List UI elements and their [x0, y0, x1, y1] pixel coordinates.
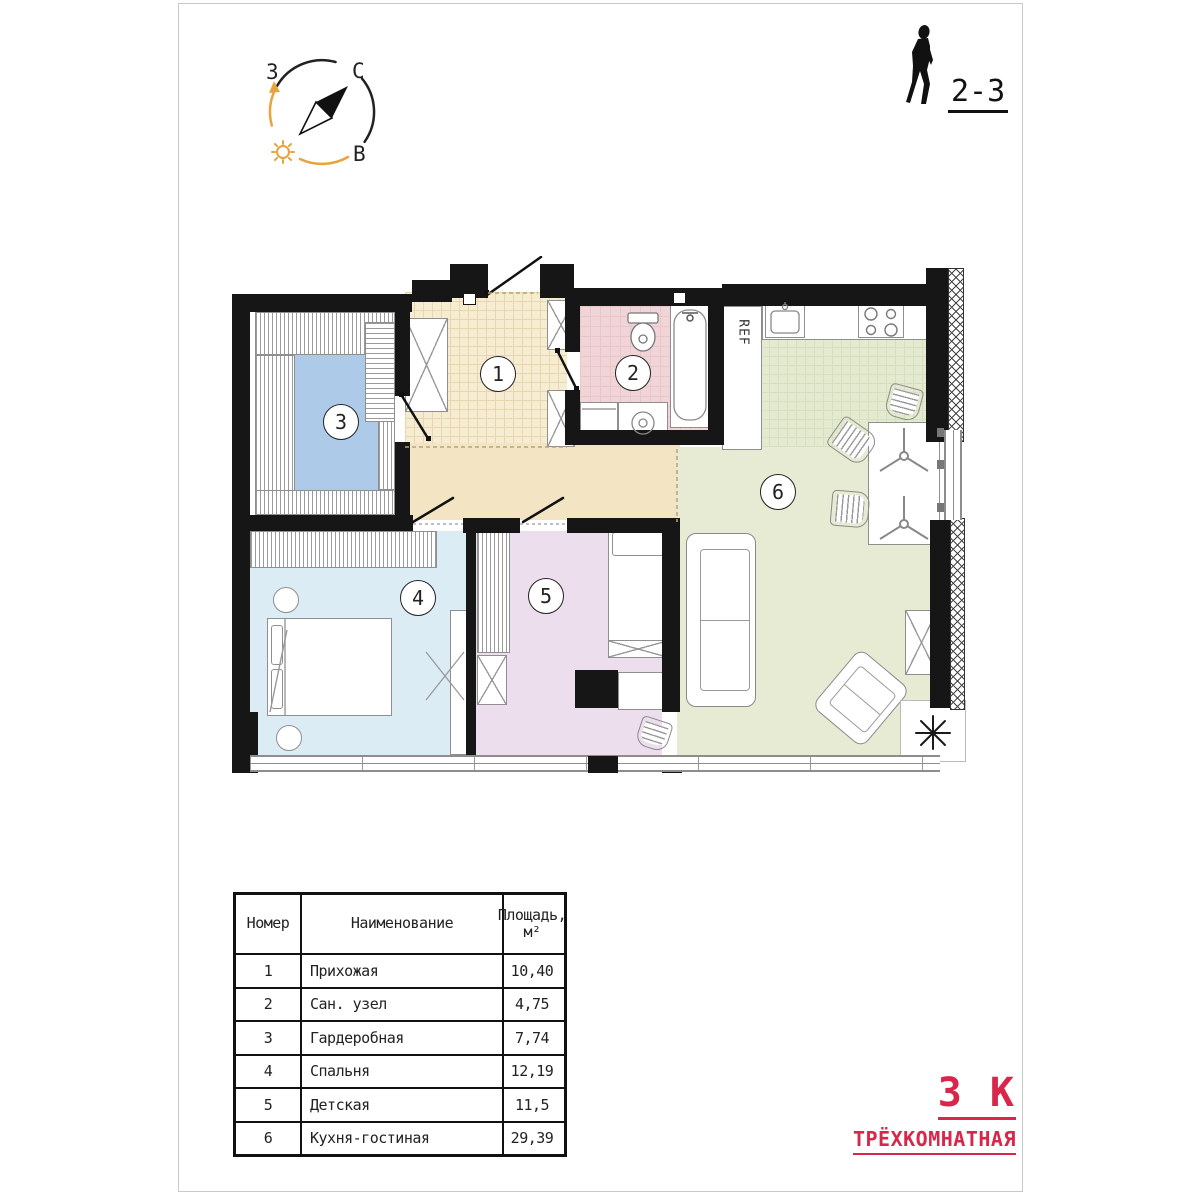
- room-number: 2: [627, 361, 639, 385]
- wall: [232, 295, 250, 773]
- insulation-strip: [950, 518, 965, 710]
- kids-cabinet: [477, 655, 507, 705]
- table-row: 6 Кухня-гостиная 29,39: [236, 1121, 564, 1155]
- corridor-area: [405, 443, 680, 520]
- sun-icon: [272, 141, 294, 163]
- wall: [232, 515, 413, 531]
- pillow-icon: [612, 532, 664, 556]
- room-circle-2: 2: [615, 355, 651, 391]
- cell-number: 5: [236, 1089, 300, 1121]
- table-row: 4 Спальня 12,19: [236, 1054, 564, 1088]
- cell-area: 10,40: [502, 955, 560, 987]
- nightstand-icon: [276, 725, 302, 751]
- bedroom-closet: [250, 531, 437, 568]
- table-row: 1 Прихожая 10,40: [236, 953, 564, 987]
- room-number: 3: [335, 410, 347, 434]
- area-header-line2: м²: [523, 924, 540, 941]
- floor-plan: REF: [230, 256, 970, 778]
- col-header-number: Номер: [236, 895, 300, 953]
- wall: [662, 527, 680, 712]
- table-row: 3 Гардеробная 7,74: [236, 1020, 564, 1054]
- kids-shelf: [477, 531, 510, 653]
- stove-icon: [858, 303, 904, 338]
- sofa-icon: [686, 533, 756, 707]
- compass-needle-icon: [300, 86, 348, 134]
- cell-area: 29,39: [502, 1123, 560, 1155]
- apartment-type-block: 3 К ТРЁХКОМНАТНАЯ: [853, 1070, 1016, 1155]
- room-spec-table: Номер Наименование Площадь, м² 1 Прихожа…: [233, 892, 567, 1157]
- wall: [722, 284, 932, 306]
- room-number: 5: [540, 584, 552, 608]
- window-hardware: [937, 460, 944, 469]
- compass-north-label: С: [352, 59, 365, 83]
- person-icon: [900, 24, 944, 116]
- window-right: [944, 430, 962, 520]
- window-hardware: [937, 503, 944, 512]
- wall: [708, 288, 724, 445]
- chair-icon: [830, 489, 871, 528]
- wall: [395, 312, 410, 396]
- col-header-area: Площадь, м²: [502, 895, 560, 953]
- nightstand-icon: [273, 587, 299, 613]
- shaft-block: [575, 670, 618, 708]
- hall-closet: [405, 318, 448, 412]
- room-number: 1: [492, 362, 504, 386]
- col-header-name: Наименование: [300, 895, 502, 953]
- window-hardware: [937, 428, 944, 437]
- cell-name: Детская: [300, 1089, 502, 1121]
- cell-area: 11,5: [502, 1089, 560, 1121]
- wall: [930, 520, 950, 708]
- desk-icon: [618, 672, 668, 710]
- wall: [232, 294, 412, 312]
- wall: [565, 300, 580, 352]
- pillow-icon: [271, 669, 283, 709]
- fridge-label: REF: [736, 306, 751, 360]
- wall-niche: [673, 292, 686, 304]
- table-row: 2 Сан. узел 4,75: [236, 987, 564, 1021]
- cell-number: 2: [236, 989, 300, 1021]
- window-pier: [588, 756, 618, 773]
- apartment-type-short: 3 К: [938, 1070, 1016, 1120]
- cell-number: 6: [236, 1123, 300, 1155]
- cell-name: Гардеробная: [300, 1022, 502, 1054]
- bathtub-icon: [670, 305, 710, 428]
- room-number: 6: [772, 480, 784, 504]
- room-number: 4: [412, 586, 424, 610]
- area-header-line1: Площадь,: [498, 907, 566, 924]
- cell-name: Прихожая: [300, 955, 502, 987]
- cell-number: 3: [236, 1022, 300, 1054]
- double-bed-icon: [267, 618, 392, 716]
- room-circle-4: 4: [400, 580, 436, 616]
- cell-name: Спальня: [300, 1056, 502, 1088]
- wall: [926, 268, 950, 442]
- room-circle-3: 3: [323, 404, 359, 440]
- wall: [412, 280, 452, 302]
- room-circle-1: 1: [480, 356, 516, 392]
- cell-area: 4,75: [502, 989, 560, 1021]
- pillow-icon: [271, 625, 283, 665]
- cell-number: 1: [236, 955, 300, 987]
- floors-label: 2-3: [948, 74, 1008, 113]
- cell-name: Сан. узел: [300, 989, 502, 1021]
- compass-west-label: З: [266, 60, 279, 84]
- fridge-cabinet: REF: [722, 306, 762, 450]
- table-row: 5 Детская 11,5: [236, 1087, 564, 1121]
- sheet: З С В 2-3 REF: [0, 0, 1200, 1200]
- insulation-strip: [948, 268, 964, 442]
- room-circle-5: 5: [528, 578, 564, 614]
- wardrobe-shelf-unit: [365, 322, 395, 422]
- wall: [565, 430, 723, 445]
- wardrobe-shelf-bottom: [255, 490, 395, 515]
- cell-area: 7,74: [502, 1022, 560, 1054]
- wall: [565, 288, 723, 306]
- wall: [466, 527, 476, 755]
- table-header-row: Номер Наименование Площадь, м²: [236, 895, 564, 953]
- compass-east-label: В: [353, 142, 366, 166]
- room-circle-6: 6: [760, 474, 796, 510]
- bed-drawer: [608, 640, 668, 658]
- cell-number: 4: [236, 1056, 300, 1088]
- cell-area: 12,19: [502, 1056, 560, 1088]
- apartment-type-full: ТРЁХКОМНАТНАЯ: [853, 1127, 1016, 1155]
- cell-name: Кухня-гостиная: [300, 1123, 502, 1155]
- wall-niche: [463, 293, 476, 305]
- kitchen-sink-icon: [765, 305, 805, 338]
